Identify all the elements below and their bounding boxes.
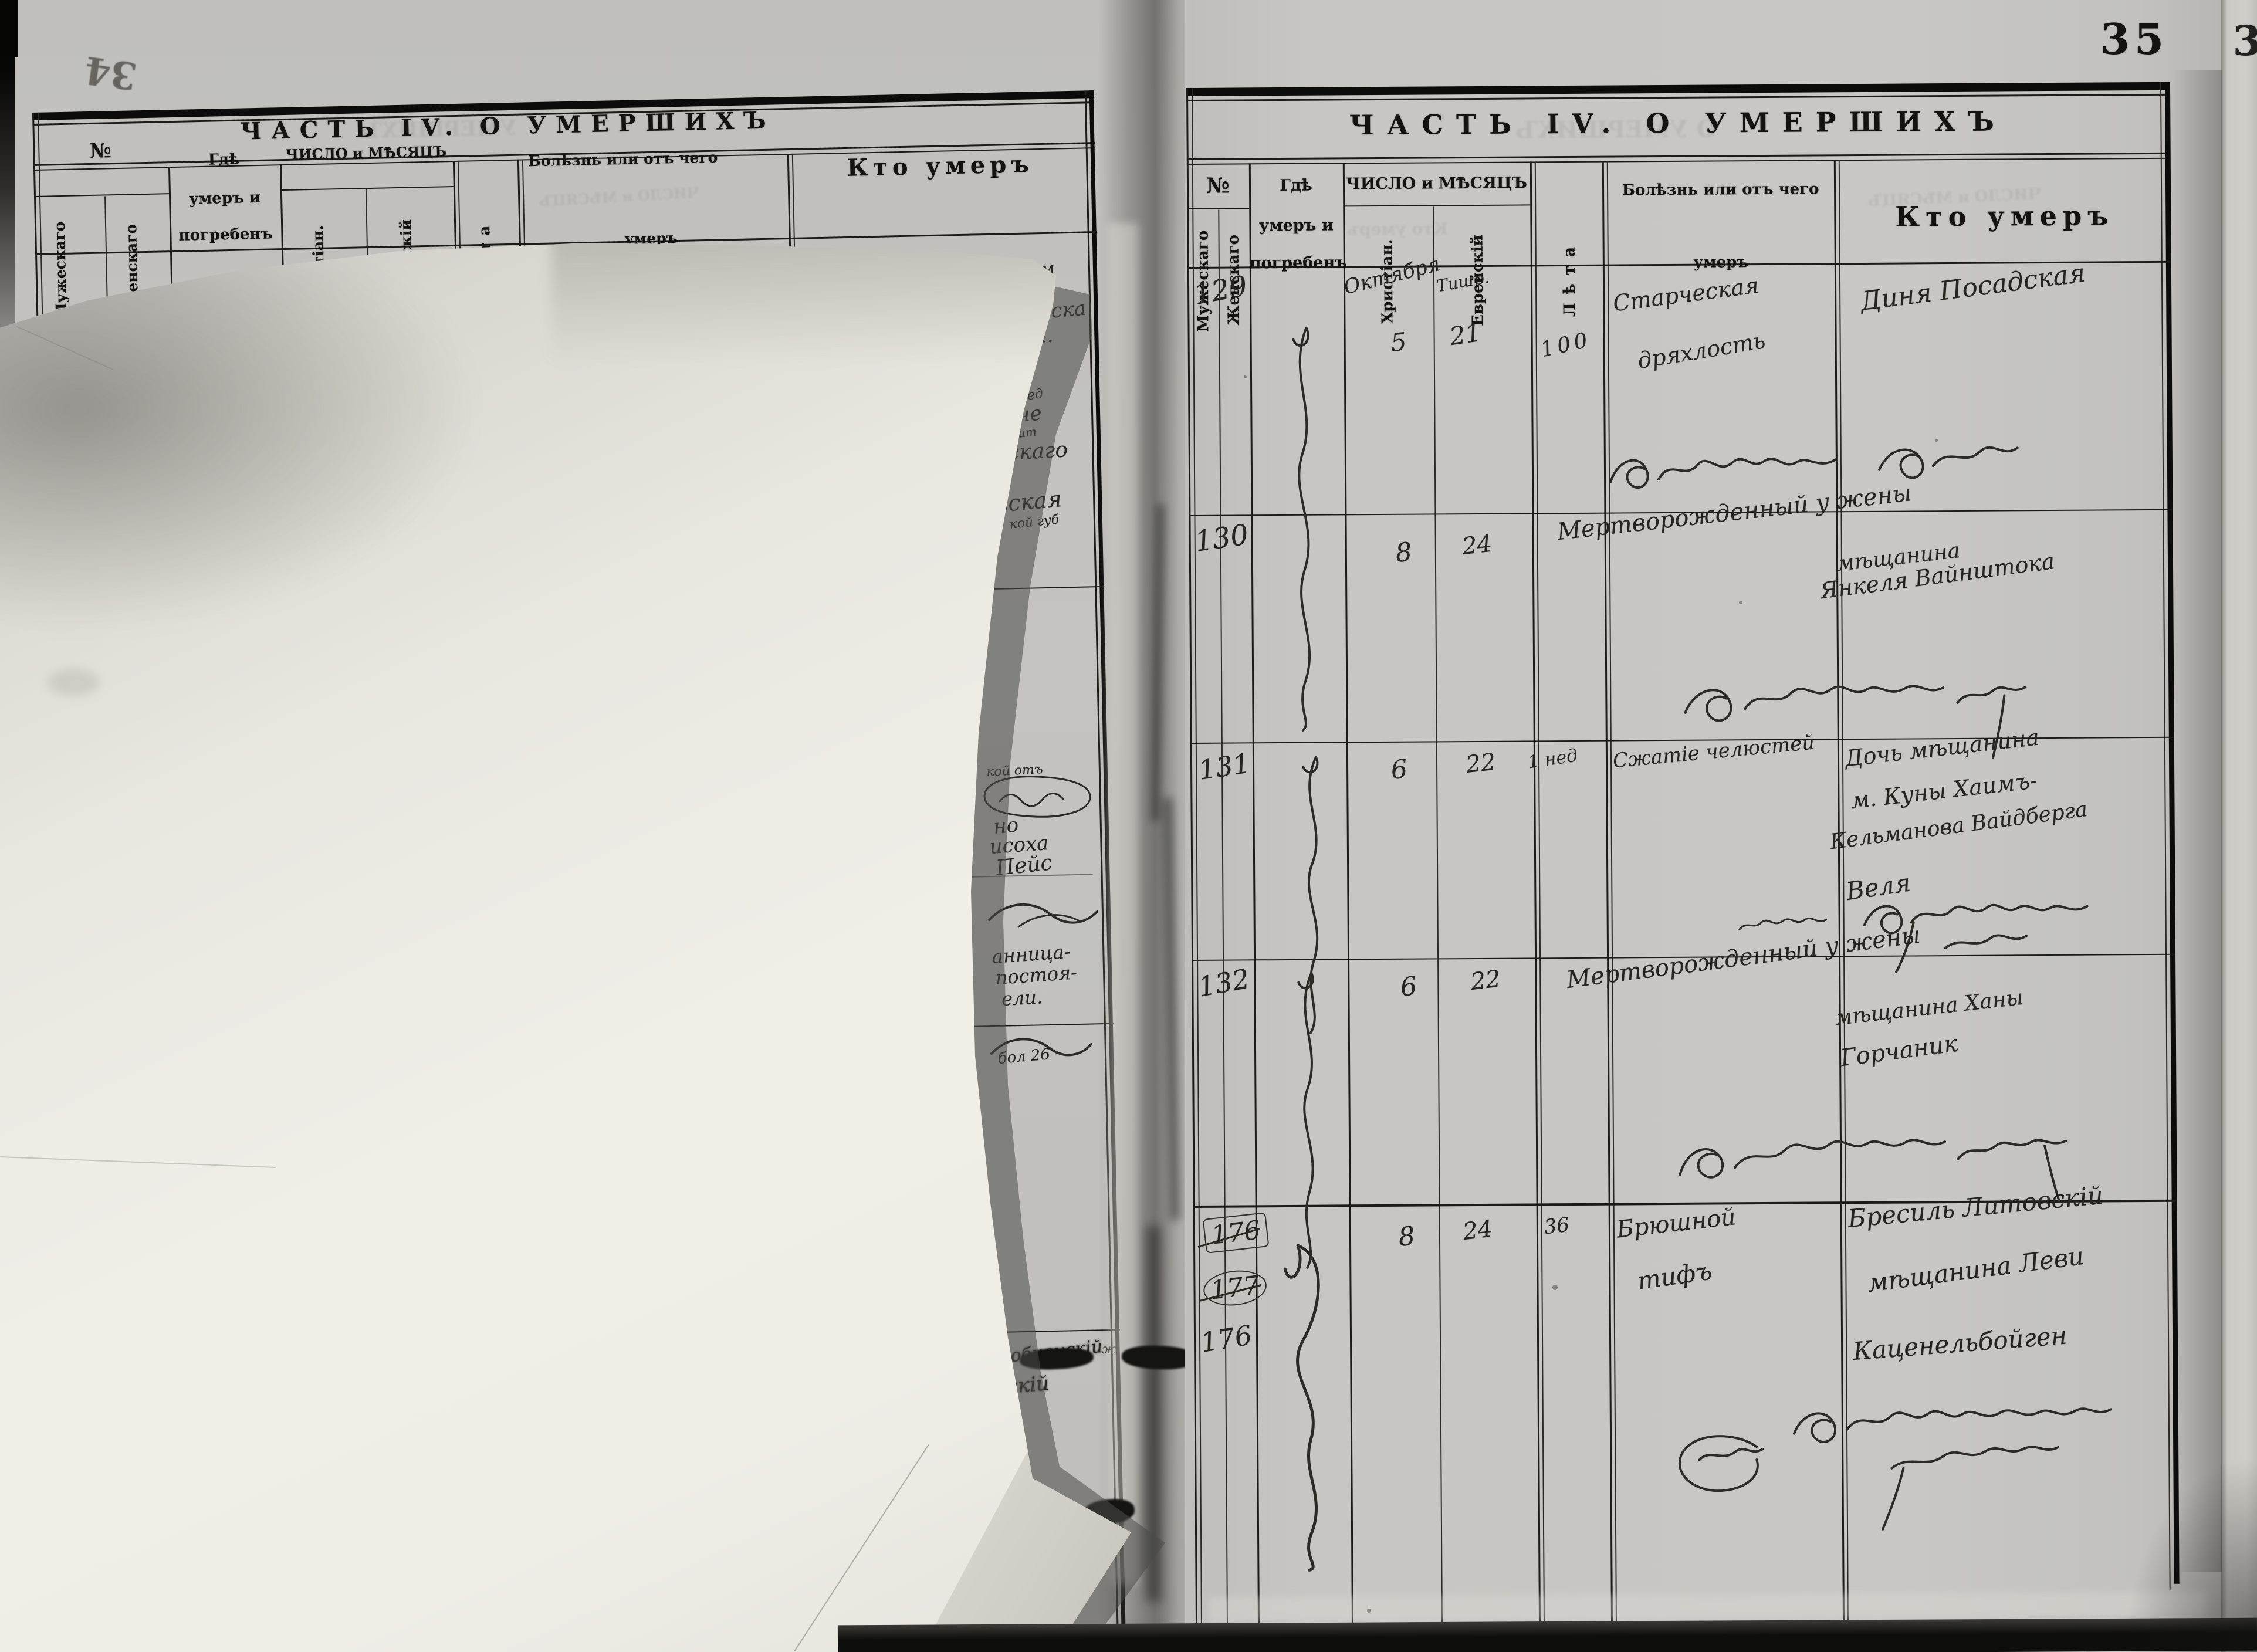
right-no-subrule	[1187, 208, 1249, 209]
date-christian-day: 5	[1389, 327, 1407, 357]
pencil-folio-number: 34	[82, 48, 140, 99]
bottom-right-corner-shadow	[2124, 1455, 2257, 1652]
entry-number: 130	[1193, 518, 1251, 558]
photo-top-left-corner	[0, 0, 18, 57]
cause-of-death: тифъ	[1635, 1256, 1714, 1295]
scanned-register-photo: 34 ЧАСТЬ IV. О УМЕРШИХЪ УМЕРШИХЪ № Мужес…	[0, 0, 2257, 1652]
left-col-who-label: Кто умеръ	[792, 149, 1089, 183]
left-col-where-l1: Гдѣ	[168, 150, 280, 170]
left-no-subrule	[34, 193, 169, 197]
deceased-description: мѣщанина Ханы	[1833, 986, 2024, 1030]
entry-number: 176	[1198, 1319, 1254, 1359]
right-col-date-label: ЧИСЛО и МѢСЯЦЪ	[1343, 174, 1530, 193]
dust-speck	[1367, 1609, 1371, 1613]
sheet-crease	[0, 1156, 276, 1168]
adjacent-page-number-partial: 3	[2229, 16, 2257, 65]
dust-speck	[1935, 439, 1938, 442]
where-ditto-flourish	[1275, 1231, 1342, 1572]
left-date-subrule	[280, 186, 454, 191]
where-ditto-flourish	[1275, 322, 1331, 733]
right-col-cause-l1: Болѣзнь или отъ чего	[1607, 180, 1834, 199]
cause-of-death: Брюшной	[1615, 1203, 1737, 1243]
entry-number-struck: 176	[1203, 1212, 1270, 1254]
entry-number: 131	[1196, 747, 1252, 786]
right-col-where-l3: погребенъ	[1250, 253, 1344, 272]
book-bottom-edge-highlight	[1209, 1592, 2206, 1622]
right-col-cause-l2: умеръ	[1608, 253, 1835, 272]
deceased-description: мѣщанина Леви	[1866, 1241, 2085, 1298]
date-christian-day: 6	[1399, 971, 1419, 1002]
left-col-where-l3: погребенъ	[170, 225, 282, 245]
deceased-name: Горчаник	[1839, 1030, 1959, 1072]
left-col-cause-l1: Болѣзнь или отъ чего	[459, 147, 787, 171]
entry-number-struck: 177	[1202, 1267, 1268, 1309]
date-christian-day: 6	[1390, 754, 1409, 785]
right-page-curl-shadow	[2171, 70, 2222, 1572]
date-jewish-day: 24	[1461, 1216, 1494, 1245]
right-table: ЧАСТЬ IV. О УМЕРШИХЪ О УМЕРШИХЪ № Мужеск…	[1186, 82, 2187, 1637]
hebrew-signature	[1669, 1426, 1775, 1502]
right-col-no	[1249, 163, 1260, 1624]
date-jewish-day: 22	[1464, 749, 1497, 778]
date-christian-day: 8	[1394, 537, 1413, 568]
sheet-top-shadow	[0, 258, 481, 634]
right-col-chr-evr	[1433, 206, 1443, 1623]
dust-speck	[1552, 1285, 1558, 1290]
right-col-no-label: №	[1187, 173, 1249, 198]
date-christian-day: 8	[1397, 1221, 1416, 1252]
page-number: 35	[2082, 14, 2187, 64]
date-jewish-day: 21	[1448, 318, 1483, 351]
left-title-bleed: УМЕРШИХЪ	[361, 116, 517, 144]
age-value: 100	[1538, 328, 1593, 363]
sheet-fold-crease	[794, 1444, 929, 1651]
adjacent-page-edge	[2221, 0, 2257, 1652]
where-ditto-flourish	[1280, 967, 1334, 1273]
entry-number: 132	[1196, 963, 1252, 1003]
hebrew-signature	[1786, 1396, 2121, 1533]
dust-speck	[1244, 375, 1247, 378]
cause-of-death: дряхлость	[1636, 327, 1767, 374]
right-title-bleed: О УМЕРШИХЪ	[1515, 115, 1717, 144]
left-col-no-label: №	[33, 138, 168, 164]
left-col-where-l2: умеръ и	[169, 188, 281, 208]
dust-speck	[1739, 601, 1742, 604]
date-jewish-day: 22	[1469, 966, 1502, 996]
right-col-sex	[1218, 210, 1228, 1625]
age-value: 36	[1543, 1213, 1571, 1240]
sheet-stain	[47, 669, 100, 696]
right-col-where-l2: умеръ и	[1249, 216, 1343, 235]
right-who-bleed: Кто умеръ	[1346, 219, 1448, 239]
right-col-where-l1: Гдѣ	[1249, 176, 1343, 195]
left-date-bleed: ЧИСЛО и МѢСЯЦЪ	[539, 184, 701, 209]
date-jewish-day: 24	[1461, 530, 1494, 560]
left-fragment: ели.	[1001, 986, 1043, 1010]
deceased-name: Каценельбойген	[1852, 1321, 2068, 1366]
right-date-subrule	[1343, 204, 1530, 206]
cause-of-death: Старческая	[1612, 272, 1761, 317]
left-col-date-label: ЧИСЛО и МѢСЯЦЪ	[279, 143, 453, 163]
deceased-name: Диня Посадская	[1859, 258, 2087, 317]
gutter-highlight	[1108, 223, 1138, 1584]
right-col-where	[1343, 163, 1353, 1624]
